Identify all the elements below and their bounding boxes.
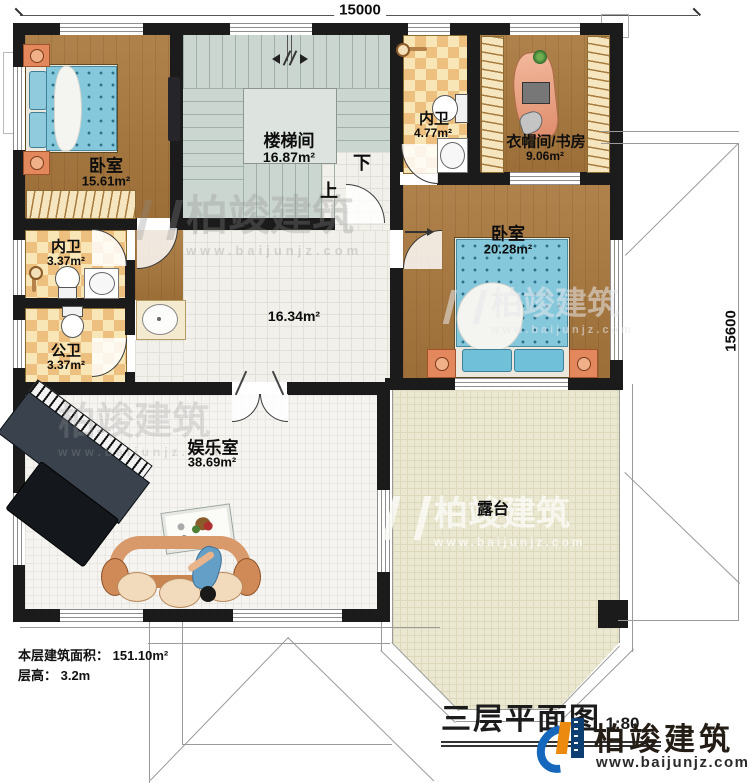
roof-line	[618, 620, 739, 621]
roof-line	[182, 622, 183, 744]
room-area-recreation: 38.69m²	[188, 456, 236, 469]
stair-flight-right	[335, 88, 390, 152]
nightstand	[23, 44, 50, 67]
room-area-bedroom-tl: 15.61m²	[82, 175, 130, 188]
wall	[125, 260, 135, 335]
bed-blanket	[54, 66, 82, 151]
nightstand	[23, 151, 50, 175]
window	[233, 609, 342, 622]
sink-basin	[89, 272, 115, 295]
nightstand	[427, 349, 456, 378]
logo-building-navy	[571, 718, 584, 758]
wall	[467, 23, 480, 172]
wall	[13, 609, 60, 622]
person	[186, 544, 226, 606]
wall	[377, 382, 390, 490]
window	[13, 67, 25, 150]
stair-down-label: 下	[353, 154, 371, 172]
wall	[390, 172, 400, 185]
window	[455, 378, 568, 390]
dimension-top-label: 15000	[334, 3, 386, 18]
towel-hook	[29, 266, 43, 280]
wardrobe	[587, 36, 610, 173]
hall-floor	[183, 230, 390, 382]
sink-drain	[157, 317, 161, 321]
window	[13, 320, 25, 368]
terrace-floor	[393, 390, 619, 710]
bed-pillow	[514, 349, 564, 372]
door-arc-bath-inner-top	[401, 144, 438, 184]
roof-line	[738, 143, 739, 620]
room-area-bath-public: 3.37m²	[47, 359, 85, 371]
wardrobe	[481, 36, 504, 173]
room-label-bath-public: 公卫	[51, 344, 81, 359]
roof-line	[148, 643, 390, 644]
floor-height-line: 层高： 3.2m	[18, 666, 168, 686]
towel-hook	[396, 43, 410, 57]
wall	[390, 185, 403, 230]
wall	[125, 372, 135, 382]
stair-arrow-right	[300, 54, 308, 64]
room-label-cloak-study: 衣帽间/书房	[506, 135, 585, 150]
window	[610, 240, 623, 360]
wall	[143, 609, 233, 622]
roof-line	[625, 143, 739, 256]
bed-pillow	[29, 112, 47, 148]
hall-area-label: 16.34m²	[268, 309, 320, 323]
window	[13, 240, 25, 295]
wall	[385, 378, 455, 390]
tv-panel	[168, 77, 180, 141]
window	[510, 23, 580, 35]
wall	[437, 172, 510, 185]
room-area-bath-inner-top: 4.77m²	[414, 127, 452, 139]
wall	[580, 172, 623, 185]
plant	[533, 50, 547, 64]
corridor-tile	[135, 340, 183, 382]
roof-line	[601, 143, 739, 144]
wall	[450, 23, 510, 35]
floor-info: 本层建筑面积： 151.10m² 层高： 3.2m	[18, 646, 168, 685]
window	[230, 23, 312, 35]
terrace-parapet	[632, 384, 633, 652]
room-area-bath-inner-left: 3.37m²	[47, 255, 85, 267]
room-area-bedroom-right: 20.28m²	[484, 243, 532, 256]
room-label-bath-inner-left: 内卫	[51, 240, 81, 255]
wall	[390, 268, 403, 378]
terrace-corner-pier	[598, 600, 628, 628]
room-label-bath-inner-top: 内卫	[419, 112, 449, 127]
terrace-edge	[392, 389, 393, 643]
sofa	[105, 536, 255, 606]
wall	[13, 218, 137, 230]
stair-arrow-left	[272, 54, 280, 64]
sink-basin	[440, 142, 465, 169]
bed-pillow	[462, 349, 512, 372]
room-label-bedroom-right: 卧室	[491, 226, 525, 243]
wardrobe	[26, 190, 136, 219]
dimension-tick	[15, 8, 23, 16]
roof-line	[182, 744, 392, 745]
floor-plan: 15000 15600	[0, 0, 750, 783]
wall	[170, 218, 335, 230]
dimension-right-label: 15600	[724, 310, 739, 352]
bed-pillow	[29, 71, 47, 110]
wall	[568, 378, 623, 390]
nightstand	[569, 349, 598, 378]
roof-line	[624, 472, 740, 584]
roof-line	[20, 627, 440, 628]
roof-line	[150, 637, 289, 781]
window	[60, 609, 143, 622]
logo-brand-text: 柏竣建筑	[594, 714, 734, 759]
wall	[143, 23, 230, 35]
window	[60, 23, 143, 35]
room-label-stairwell: 楼梯间	[264, 133, 315, 150]
monitor	[522, 82, 550, 104]
door-swing-arrow-head	[427, 228, 434, 236]
window	[408, 23, 450, 35]
floor-area-line: 本层建筑面积： 151.10m²	[18, 646, 168, 666]
stair-up-label: 上	[320, 182, 338, 200]
wall	[377, 572, 390, 622]
room-area-stairwell: 16.87m²	[263, 150, 315, 164]
wall	[287, 382, 390, 395]
door-swing-arrow	[405, 231, 429, 233]
stair-flight-left	[183, 88, 243, 185]
room-area-cloak-study: 9.06m²	[526, 150, 564, 162]
toilet-tank	[58, 287, 77, 299]
room-label-terrace: 露台	[477, 502, 509, 518]
toilet-bowl	[61, 314, 84, 338]
room-label-bedroom-tl: 卧室	[89, 158, 123, 175]
logo-url-text: www.baijunjz.com	[596, 754, 749, 771]
sliding-door	[510, 172, 580, 185]
terrace-door	[377, 490, 390, 572]
company-logo: 柏竣建筑 www.baijunjz.com	[538, 712, 750, 782]
roof-line	[601, 131, 739, 132]
